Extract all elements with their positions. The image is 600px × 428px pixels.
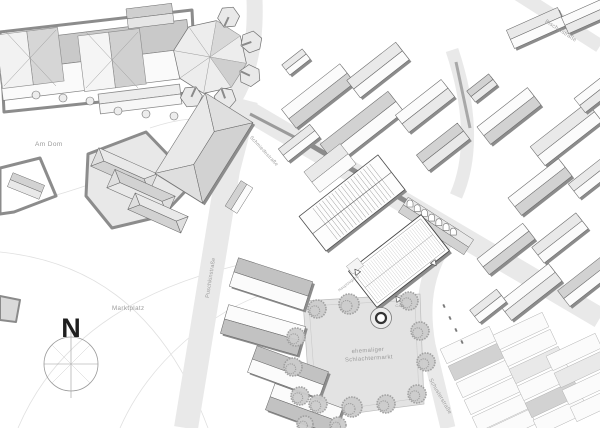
label-am-dom: Am Dom — [35, 141, 63, 148]
site-plan: Am Dom Marktplatz Puschkinstraße Schmied… — [0, 0, 600, 428]
label-street-schmiedestrasse: Schmiedestraße — [248, 135, 279, 168]
north-letter: N — [61, 313, 81, 343]
label-cafe: Café — [395, 303, 405, 308]
dom-church-building — [0, 3, 262, 120]
label-marktplatz: Marktplatz — [112, 305, 145, 312]
label-main-entrance: Hauptzugang — [337, 274, 359, 292]
site-plan-drawing: Am Dom Marktplatz Puschkinstraße Schmied… — [0, 0, 600, 428]
